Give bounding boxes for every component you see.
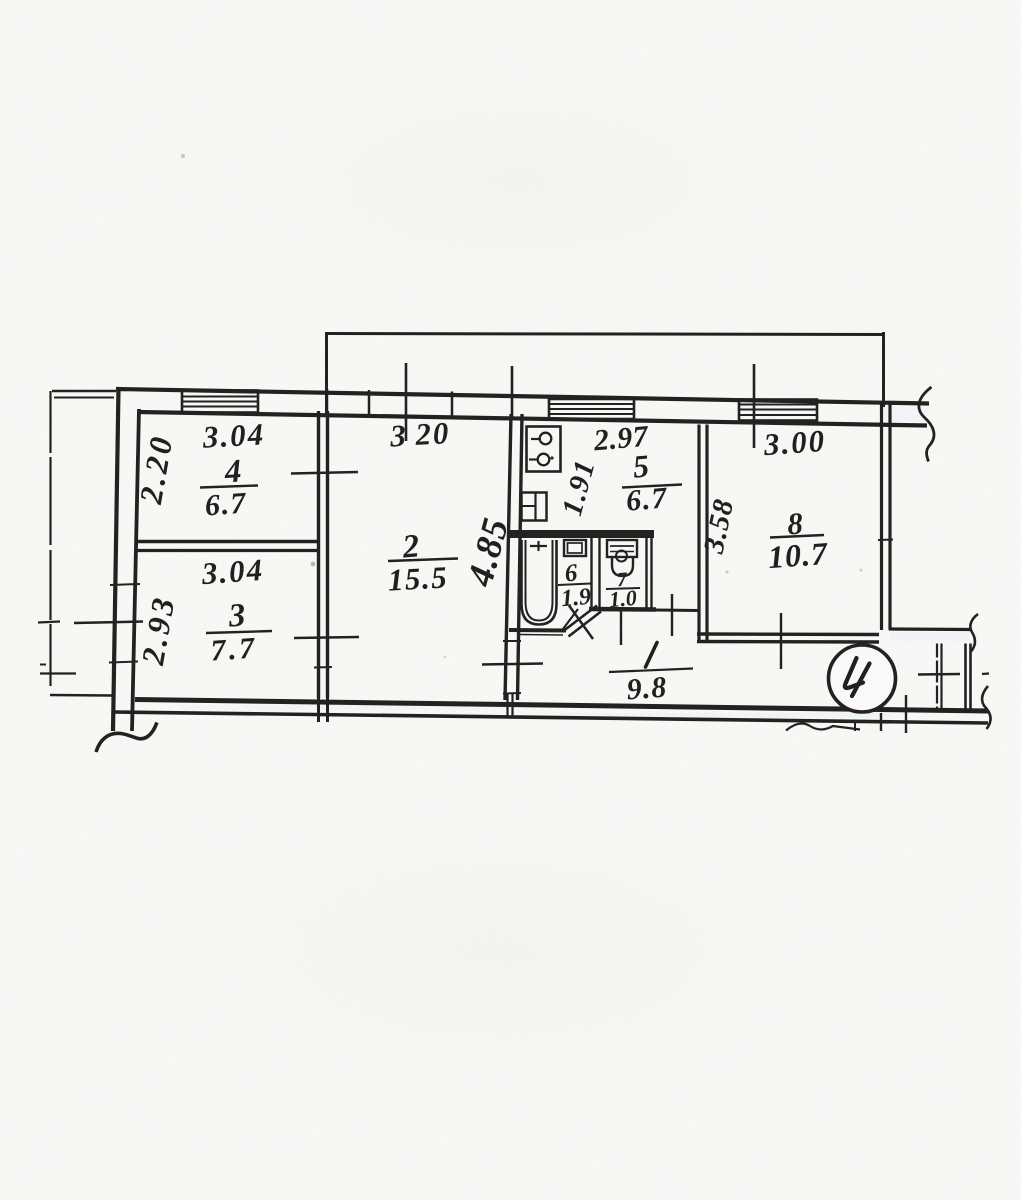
- svg-text:10.7: 10.7: [767, 535, 830, 575]
- svg-text:3: 3: [388, 418, 408, 454]
- svg-text:3: 3: [227, 597, 247, 634]
- svg-text:3.04: 3.04: [201, 416, 266, 454]
- svg-text:3.04: 3.04: [200, 552, 266, 591]
- svg-text:15.5: 15.5: [387, 559, 449, 597]
- svg-text:20: 20: [413, 415, 451, 452]
- svg-text:3.00: 3.00: [762, 423, 828, 462]
- svg-text:5: 5: [631, 447, 650, 484]
- svg-text:7.7: 7.7: [210, 631, 259, 667]
- svg-text:1.9: 1.9: [560, 584, 592, 613]
- svg-text:9.8: 9.8: [626, 671, 669, 707]
- svg-text:6.7: 6.7: [204, 487, 248, 523]
